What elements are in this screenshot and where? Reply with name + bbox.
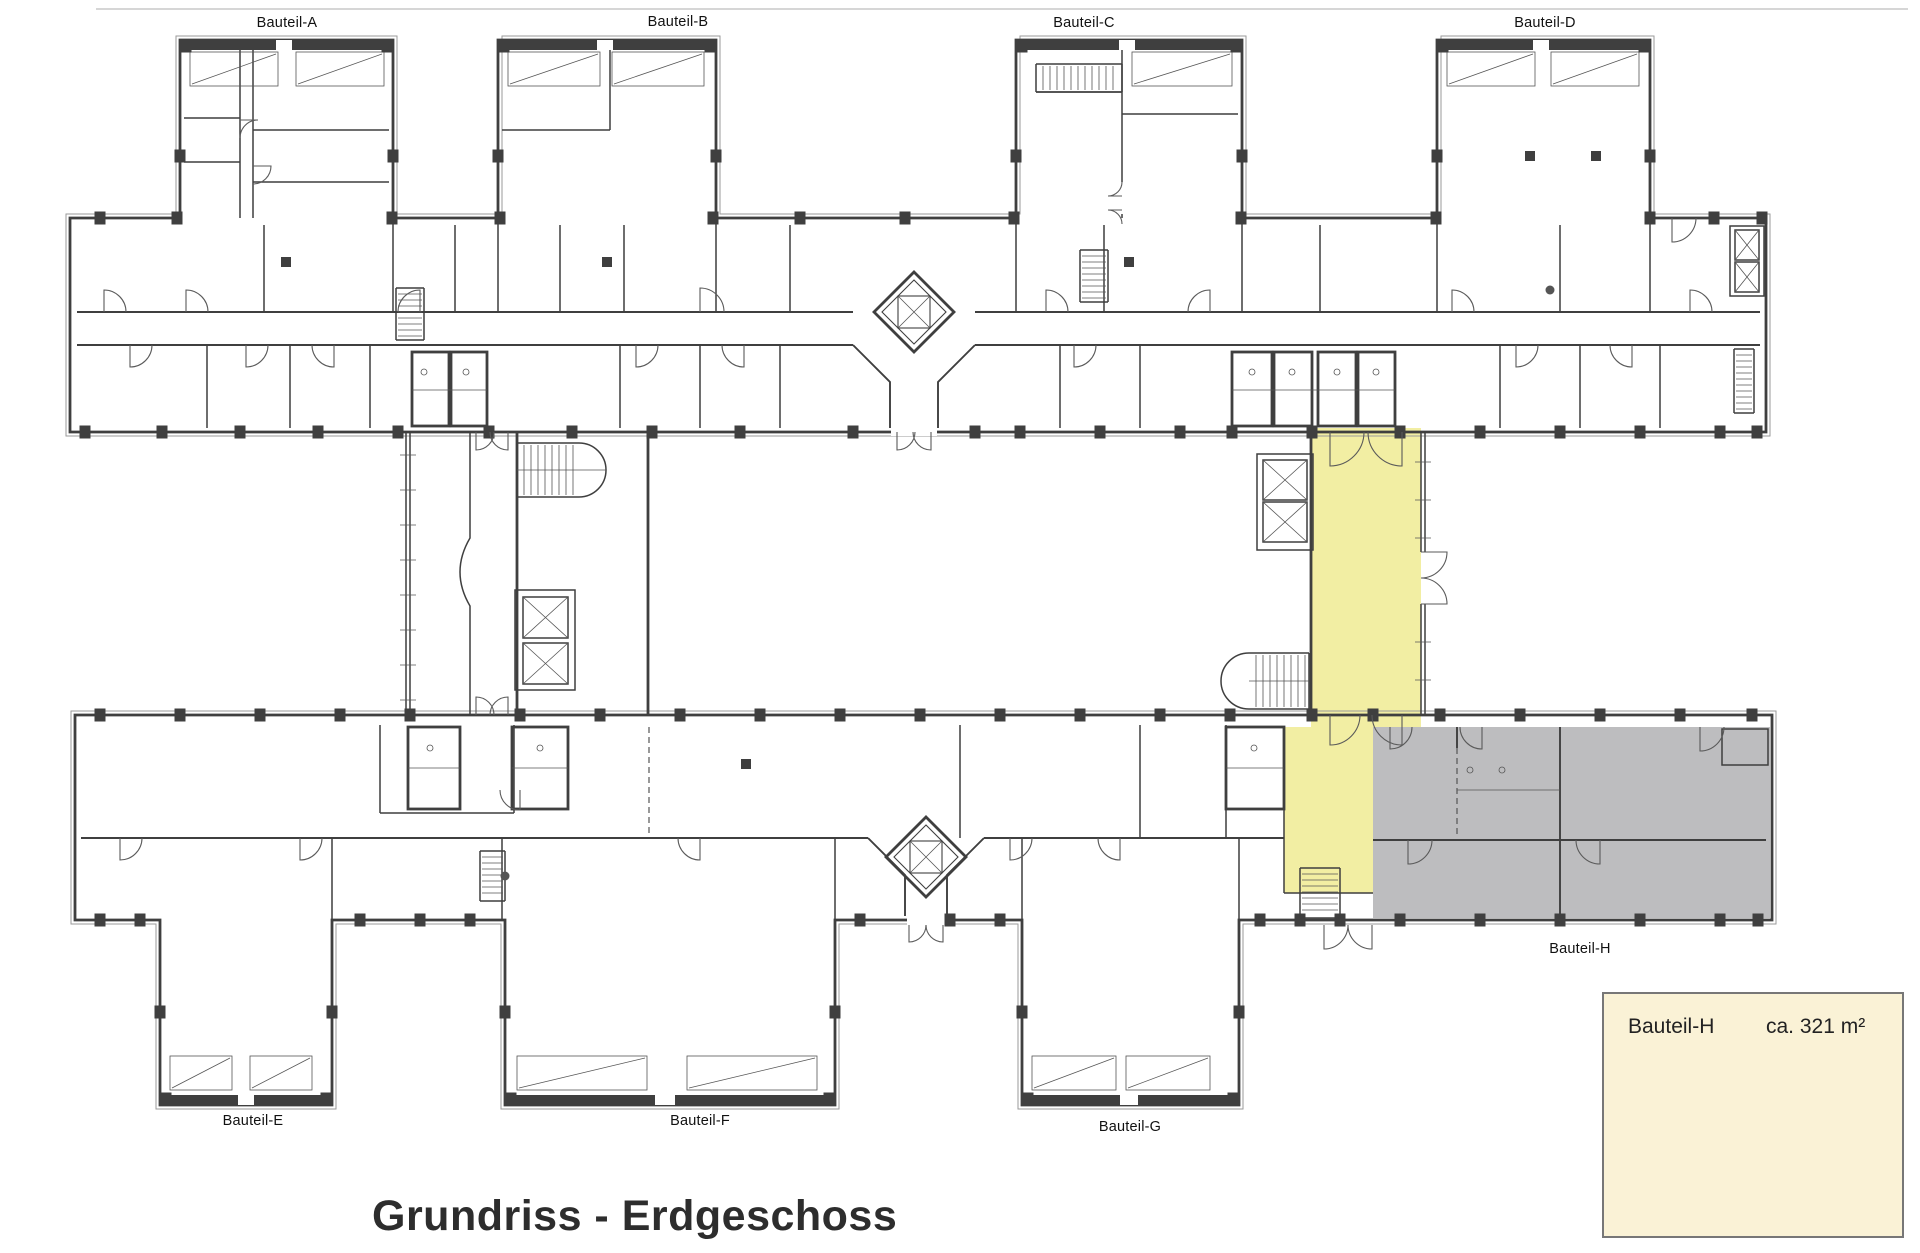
label-bauteil-b: Bauteil-B <box>648 14 709 30</box>
entrance-canopies <box>160 40 1650 1105</box>
page-title: Grundriss - Erdgeschoss <box>372 1192 897 1240</box>
building-outlines <box>66 36 1776 1109</box>
label-bauteil-e: Bauteil-E <box>223 1113 284 1129</box>
atrium-diamonds <box>874 272 966 897</box>
label-bauteil-a: Bauteil-A <box>257 15 318 31</box>
glazing-ticks <box>400 455 1431 700</box>
label-bauteil-f: Bauteil-F <box>670 1113 730 1129</box>
highlight-zones <box>1284 428 1770 918</box>
legend-area-value: ca. 321 m² <box>1766 1015 1865 1038</box>
elevator-shafts <box>515 226 1764 690</box>
floor-plan-canvas: Bauteil-A Bauteil-B Bauteil-C Bauteil-D … <box>0 0 1920 1253</box>
gray-highlight-area-bauteil-h <box>1373 727 1770 918</box>
floor-plan-page: Bauteil-A Bauteil-B Bauteil-C Bauteil-D … <box>0 0 1920 1253</box>
legend-group: Bauteil-H ca. 321 m² <box>1603 993 1903 1237</box>
top-slab-interior <box>77 218 1760 436</box>
legend-name: Bauteil-H <box>1628 1015 1714 1038</box>
label-bauteil-g: Bauteil-G <box>1099 1119 1161 1135</box>
label-bauteil-h: Bauteil-H <box>1549 941 1610 957</box>
wing-interiors <box>184 50 1238 218</box>
label-bauteil-c: Bauteil-C <box>1053 15 1114 31</box>
label-bauteil-d: Bauteil-D <box>1514 15 1575 31</box>
